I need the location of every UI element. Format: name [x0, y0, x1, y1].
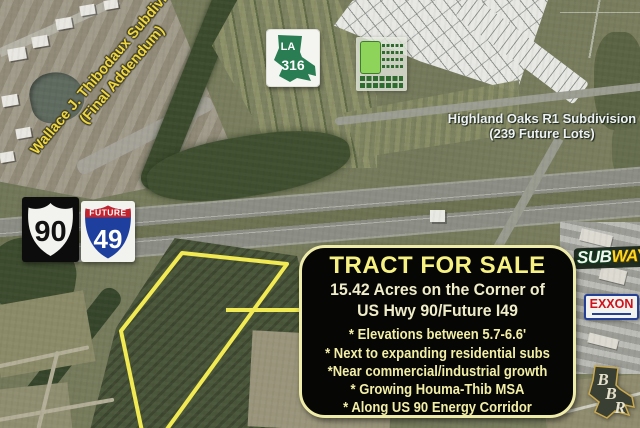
la316-prefix: LA — [281, 41, 296, 53]
la-316-route-shield-icon: LA 316 — [266, 29, 320, 87]
subway-logo: SUBWAY — [574, 246, 640, 270]
bbr-realty-logo: B B R — [582, 363, 636, 425]
subway-logo-sub: SUB — [577, 247, 612, 267]
exxon-logo: EXXON — [584, 294, 639, 320]
i49-number: 49 — [94, 224, 123, 254]
tract-for-sale-box: TRACT FOR SALE 15.42 Acres on the Corner… — [299, 245, 576, 418]
i49-banner: FUTURE — [89, 208, 126, 218]
sale-box-bullet: * Elevations between 5.7-6.6' — [316, 326, 560, 344]
logo-text-line — [382, 65, 403, 68]
field-patch — [0, 382, 72, 428]
logo-caption-line — [360, 83, 403, 88]
sale-box-title: TRACT FOR SALE — [302, 253, 573, 278]
exxon-logo-underline — [592, 313, 632, 316]
bbr-letter-r: R — [613, 398, 625, 417]
subway-logo-way: WAY — [611, 246, 640, 266]
green-logo-icon — [360, 41, 381, 74]
highland-label-line2: (239 Future Lots) — [428, 126, 640, 141]
sale-box-bullet: *Near commercial/industrial growth — [316, 363, 560, 381]
sale-box-bullet: * Along US 90 Energy Corridor — [316, 399, 560, 417]
logo-caption-line — [360, 76, 403, 81]
aerial-map-flyer: Wallace J. Thibodaux Subdivision (Final … — [0, 0, 640, 428]
la316-number: 316 — [281, 57, 305, 73]
highland-oaks-label: Highland Oaks R1 Subdivision (239 Future… — [428, 111, 640, 142]
us90-number: 90 — [34, 216, 66, 248]
highland-label-line1: Highland Oaks R1 Subdivision — [428, 111, 640, 126]
future-i49-interstate-shield-icon: FUTURE 49 — [81, 201, 135, 262]
logo-text-line — [382, 51, 403, 54]
exxon-logo-text: EXXON — [586, 298, 637, 311]
sale-box-bullet: * Growing Houma-Thib MSA — [316, 381, 560, 399]
sale-box-subtitle-line2: US Hwy 90/Future I49 — [311, 301, 563, 320]
building — [430, 210, 445, 222]
sale-box-bullet: * Next to expanding residential subs — [316, 345, 560, 363]
logo-text-line — [382, 44, 403, 47]
development-logo-sign — [356, 37, 407, 91]
logo-text-line — [382, 58, 403, 61]
sale-box-subtitle-line1: 15.42 Acres on the Corner of — [311, 280, 563, 299]
us-90-route-shield-icon: 90 — [22, 197, 79, 262]
sale-box-bullet-list: * Elevations between 5.7-6.6' * Next to … — [302, 326, 573, 417]
